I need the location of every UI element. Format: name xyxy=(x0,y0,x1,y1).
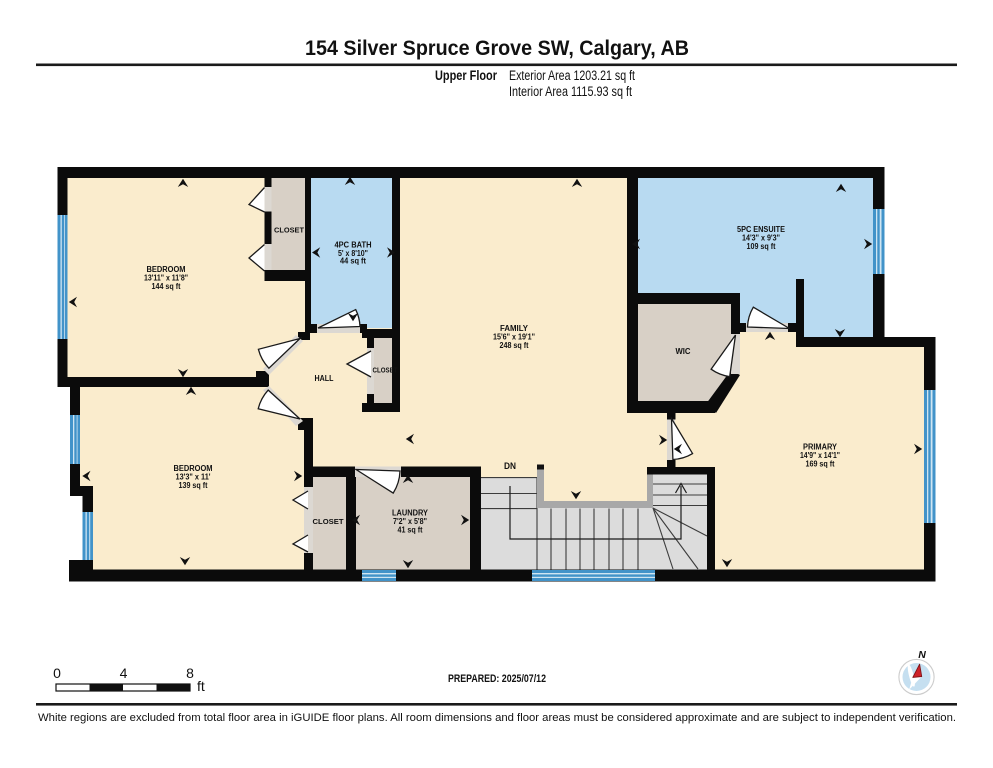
svg-text:DN: DN xyxy=(504,461,516,471)
svg-text:248 sq ft: 248 sq ft xyxy=(500,341,529,350)
svg-text:PREPARED: 2025/07/12: PREPARED: 2025/07/12 xyxy=(448,673,546,685)
svg-text:CLOSET: CLOSET xyxy=(274,226,304,235)
svg-text:144 sq ft: 144 sq ft xyxy=(152,282,181,291)
svg-text:Exterior Area 1203.21 sq ft: Exterior Area 1203.21 sq ft xyxy=(509,68,635,83)
svg-text:139 sq ft: 139 sq ft xyxy=(179,481,208,490)
svg-text:4: 4 xyxy=(120,665,128,681)
svg-text:CLOSET: CLOSET xyxy=(313,517,344,526)
svg-text:109 sq ft: 109 sq ft xyxy=(747,242,776,251)
svg-text:Interior Area 1115.93 sq ft: Interior Area 1115.93 sq ft xyxy=(509,84,632,99)
svg-text:WIC: WIC xyxy=(676,347,691,356)
svg-text:CLOSET: CLOSET xyxy=(373,368,399,375)
svg-text:41 sq ft: 41 sq ft xyxy=(398,526,423,535)
svg-text:White regions are excluded fro: White regions are excluded from total fl… xyxy=(38,712,956,724)
svg-text:169 sq ft: 169 sq ft xyxy=(806,460,835,469)
svg-text:0: 0 xyxy=(53,665,61,681)
svg-text:N: N xyxy=(918,649,926,661)
svg-text:44 sq ft: 44 sq ft xyxy=(340,257,366,266)
svg-text:Upper Floor: Upper Floor xyxy=(435,68,498,83)
svg-text:ft: ft xyxy=(197,678,205,694)
svg-text:8: 8 xyxy=(186,665,194,681)
svg-text:154 Silver Spruce Grove SW, Ca: 154 Silver Spruce Grove SW, Calgary, AB xyxy=(305,36,689,60)
svg-text:HALL: HALL xyxy=(315,374,334,383)
